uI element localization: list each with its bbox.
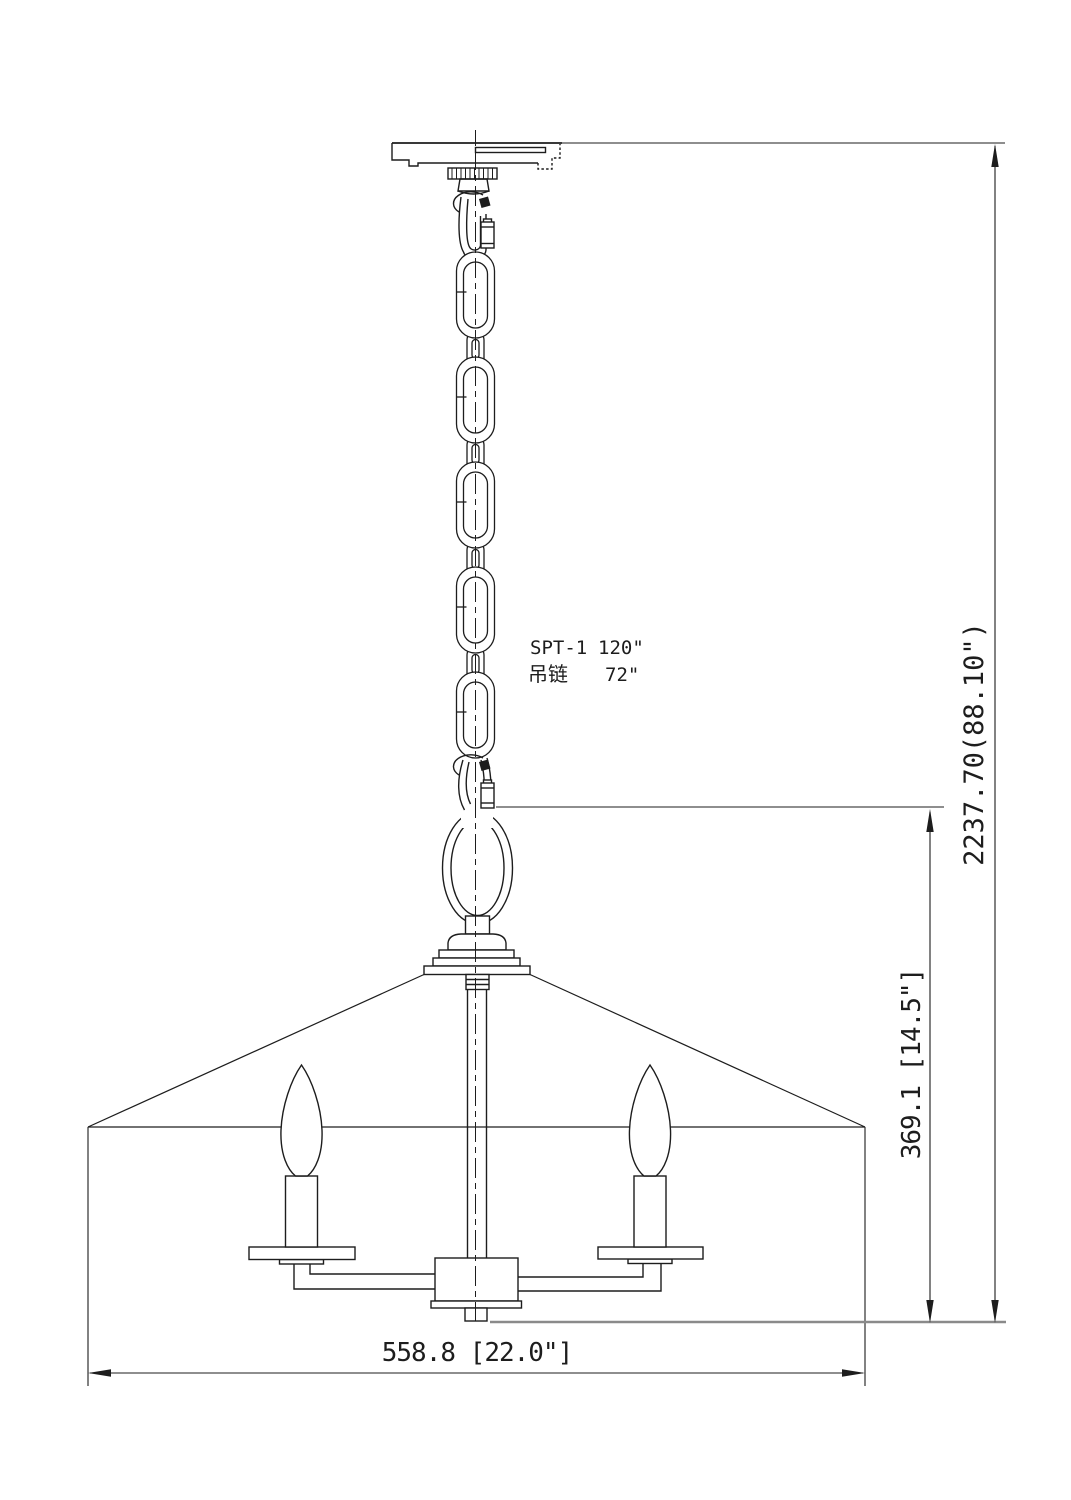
mounting-bar-slot bbox=[476, 148, 546, 153]
candle-sleeve-left bbox=[286, 1176, 318, 1247]
overall-height-label: 2237.70(88.10") bbox=[959, 622, 990, 866]
candle-right bbox=[598, 1065, 703, 1264]
width-label: 558.8 [22.0"] bbox=[382, 1338, 573, 1368]
candle-sleeve-right bbox=[634, 1176, 666, 1247]
dimension-annotations bbox=[88, 143, 1006, 1386]
bobeche-left bbox=[249, 1247, 355, 1260]
arm-left bbox=[294, 1263, 436, 1289]
arrow-up-overall bbox=[991, 144, 998, 167]
arrow-right-width bbox=[842, 1369, 865, 1376]
bulb-left bbox=[281, 1065, 322, 1176]
arm-right bbox=[517, 1263, 661, 1291]
arrow-down-shade bbox=[926, 1300, 933, 1323]
chain-type-label: 吊链 bbox=[528, 662, 568, 686]
bulb-right bbox=[629, 1065, 670, 1176]
shade-height-label: 369.1 [14.5"] bbox=[897, 969, 927, 1160]
shade-outline bbox=[88, 975, 865, 1128]
suspension-note: SPT-1 120" 吊链 72" bbox=[528, 637, 644, 686]
threaded-collar bbox=[448, 168, 497, 179]
arrow-up-shade bbox=[926, 809, 933, 832]
canopy-neck bbox=[458, 179, 489, 191]
chandelier-fixture bbox=[88, 130, 865, 1321]
arrow-down-overall bbox=[991, 1300, 998, 1323]
finial-oval bbox=[443, 758, 513, 924]
bobeche-right bbox=[598, 1247, 703, 1259]
wire-connector-bottom bbox=[481, 783, 494, 808]
chain-length-value: 72" bbox=[605, 664, 639, 686]
chandelier-spec-drawing: 2237.70(88.10") 369.1 [14.5"] 558.8 [22.… bbox=[0, 0, 1071, 1500]
center-stem bbox=[466, 975, 489, 1259]
wire-type-label: SPT-1 bbox=[530, 637, 587, 659]
candle-left bbox=[249, 1065, 355, 1264]
shade-cap bbox=[424, 916, 530, 975]
arrow-left-width bbox=[88, 1369, 111, 1376]
ceiling-canopy bbox=[392, 143, 562, 194]
wire-length-value: 120" bbox=[598, 637, 644, 659]
center-hub bbox=[431, 1258, 522, 1321]
hanging-hook-top bbox=[453, 192, 494, 260]
